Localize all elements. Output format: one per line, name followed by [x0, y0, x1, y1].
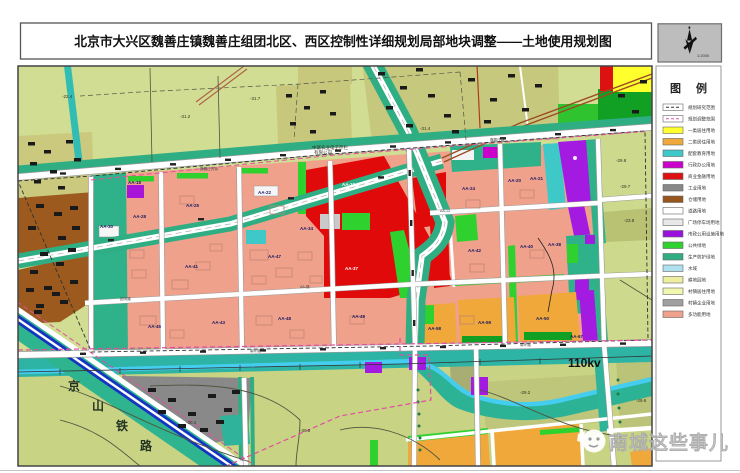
svg-text:生产防护绿地: 生产防护绿地: [688, 254, 715, 261]
svg-text:路: 路: [140, 438, 153, 453]
svg-text:AA-58: AA-58: [428, 326, 442, 331]
svg-text:AA-30: AA-30: [100, 224, 114, 229]
svg-text:二类居住用地: 二类居住用地: [688, 139, 715, 146]
svg-text:AA-41: AA-41: [185, 264, 199, 269]
svg-text:工业用地: 工业用地: [688, 185, 706, 192]
svg-text:-29.6: -29.6: [636, 398, 647, 403]
svg-text:团河路: 团河路: [120, 296, 131, 301]
svg-text:村镇居住用地: 村镇居住用地: [688, 288, 715, 295]
svg-text:AA-38: AA-38: [548, 242, 562, 247]
svg-text:-22.4: -22.4: [62, 94, 73, 99]
svg-text:AA-路: AA-路: [300, 284, 310, 289]
svg-text:AA-13: AA-13: [440, 209, 450, 213]
svg-text:AA-42: AA-42: [468, 248, 482, 253]
svg-text:-30.8: -30.8: [300, 428, 311, 433]
svg-text:AA-28: AA-28: [133, 214, 147, 219]
svg-text:AA-43: AA-43: [212, 320, 226, 325]
svg-text:南城这些事儿: 南城这些事儿: [609, 431, 729, 454]
svg-text:耕地园地: 耕地园地: [688, 277, 706, 284]
svg-text:魏善庄大街: 魏善庄大街: [200, 166, 218, 171]
svg-text:-29.7: -29.7: [620, 184, 631, 189]
svg-text:配套教育用地: 配套教育用地: [688, 150, 715, 157]
svg-text:铁: 铁: [116, 418, 128, 433]
svg-text:行政办公用地: 行政办公用地: [688, 162, 715, 169]
svg-text:商业金融用地: 商业金融用地: [688, 173, 715, 180]
svg-text:-31.2: -31.2: [180, 114, 191, 119]
svg-text:道路用地: 道路用地: [688, 208, 706, 215]
svg-text:图 例: 图 例: [670, 81, 713, 95]
svg-text:魏善庄路: 魏善庄路: [490, 137, 505, 142]
svg-text:-30.2: -30.2: [186, 420, 197, 425]
svg-text:公共绿地: 公共绿地: [688, 242, 706, 249]
svg-text:规划调整范围: 规划调整范围: [688, 116, 715, 123]
svg-text:AA-37: AA-37: [345, 266, 359, 271]
svg-text:北京市大兴区魏善庄镇魏善庄组团北区、西区控制性详细规划局部地: 北京市大兴区魏善庄镇魏善庄组团北区、西区控制性详细规划局部地块调整——土地使用规…: [74, 34, 611, 49]
svg-text:AA-50: AA-50: [536, 316, 550, 321]
svg-text:南环路: 南环路: [250, 348, 261, 353]
svg-text:AA-24: AA-24: [462, 186, 476, 191]
svg-text:AA-45: AA-45: [148, 324, 162, 329]
svg-text:广场停车场用地: 广场停车场用地: [688, 219, 720, 226]
svg-text:AA-40: AA-40: [520, 244, 534, 249]
svg-text:市政公用设施用地: 市政公用设施用地: [688, 231, 724, 238]
svg-text:-29.2: -29.2: [520, 390, 531, 395]
svg-text:110kv: 110kv: [568, 356, 601, 370]
svg-text:多功能用地: 多功能用地: [688, 311, 711, 318]
svg-text:南环路: 南环路: [520, 342, 531, 347]
svg-text:京: 京: [68, 378, 80, 393]
svg-text:-23.8: -23.8: [624, 218, 635, 223]
svg-text:AA-48: AA-48: [278, 316, 292, 321]
svg-text:一类居住用地: 一类居住用地: [688, 127, 715, 134]
svg-text:-29.8: -29.8: [616, 158, 627, 163]
svg-text:AA-22: AA-22: [258, 190, 272, 195]
svg-text:AA-25: AA-25: [186, 203, 200, 208]
svg-text:1:2000: 1:2000: [697, 53, 710, 58]
svg-text:AA-18: AA-18: [128, 180, 142, 185]
svg-text:-31.7: -31.7: [250, 96, 261, 101]
svg-text:AA-47: AA-47: [268, 254, 282, 259]
svg-text:AA-21: AA-21: [530, 176, 544, 181]
svg-text:AA-67: AA-67: [570, 334, 584, 339]
svg-text:AA-20: AA-20: [508, 178, 522, 183]
svg-text:AA-59: AA-59: [478, 320, 492, 325]
svg-text:AA-49: AA-49: [352, 314, 366, 319]
svg-text:山: 山: [92, 398, 104, 413]
svg-text:村镇企业用地: 村镇企业用地: [688, 300, 715, 307]
svg-text:有限公司: 有限公司: [314, 149, 332, 156]
svg-text:AA-34: AA-34: [300, 226, 314, 231]
svg-text:水域: 水域: [688, 265, 697, 271]
svg-text:仓储用地: 仓储用地: [688, 196, 706, 203]
svg-text:规划研究范围: 规划研究范围: [688, 104, 715, 111]
svg-text:-31.4: -31.4: [420, 126, 431, 131]
svg-text:AA-12: AA-12: [342, 182, 356, 187]
